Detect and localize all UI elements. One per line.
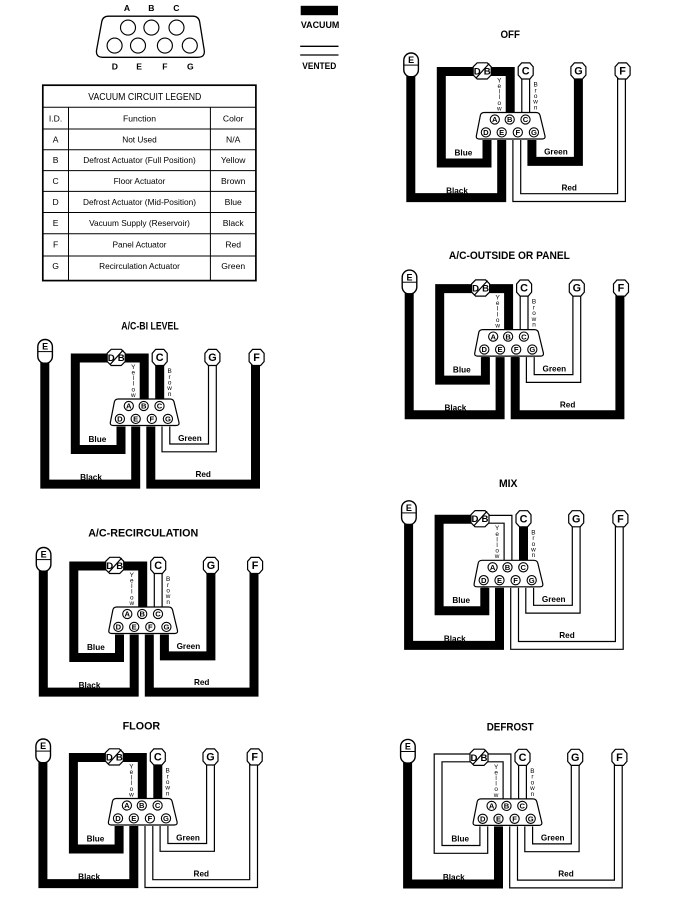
svg-text:Defrost Actuator (Full Positio: Defrost Actuator (Full Position) xyxy=(83,155,196,165)
svg-text:E: E xyxy=(53,218,59,228)
svg-text:C: C xyxy=(52,176,58,186)
svg-text:OFF: OFF xyxy=(500,29,520,41)
svg-text:DEFROST: DEFROST xyxy=(487,721,534,733)
svg-text:Yellow: Yellow xyxy=(221,155,246,165)
svg-text:A: A xyxy=(124,3,130,13)
svg-text:C: C xyxy=(173,3,179,13)
svg-text:Function: Function xyxy=(123,114,156,124)
svg-text:Floor Actuator: Floor Actuator xyxy=(114,176,166,186)
svg-text:Blue: Blue xyxy=(225,197,242,207)
svg-text:I.D.: I.D. xyxy=(49,114,62,124)
svg-text:G: G xyxy=(187,62,194,72)
svg-text:D: D xyxy=(52,197,58,207)
svg-text:Black: Black xyxy=(223,218,245,228)
svg-text:Color: Color xyxy=(223,114,244,124)
svg-text:A/C-BI LEVEL: A/C-BI LEVEL xyxy=(121,321,179,333)
svg-text:Green: Green xyxy=(221,261,245,271)
svg-text:Recirculation Actuator: Recirculation Actuator xyxy=(99,261,180,271)
svg-text:B: B xyxy=(148,3,154,13)
svg-text:VACUUM: VACUUM xyxy=(301,20,340,31)
svg-text:MIX: MIX xyxy=(499,478,518,490)
svg-text:N/A: N/A xyxy=(226,135,241,145)
svg-text:F: F xyxy=(162,62,167,72)
svg-text:Vacuum Supply (Reservoir): Vacuum Supply (Reservoir) xyxy=(89,218,190,228)
svg-text:Brown: Brown xyxy=(221,176,246,186)
svg-text:Red: Red xyxy=(225,240,241,250)
svg-text:VENTED: VENTED xyxy=(302,61,336,72)
svg-text:Defrost Actuator (Mid-Position: Defrost Actuator (Mid-Position) xyxy=(83,197,196,207)
svg-text:E: E xyxy=(136,62,142,72)
svg-text:A/C-RECIRCULATION: A/C-RECIRCULATION xyxy=(88,528,198,540)
svg-text:VACUUM CIRCUIT LEGEND: VACUUM CIRCUIT LEGEND xyxy=(88,92,201,103)
svg-text:B: B xyxy=(53,155,59,165)
svg-text:D: D xyxy=(112,62,118,72)
svg-text:A: A xyxy=(53,135,59,145)
svg-text:FLOOR: FLOOR xyxy=(123,720,161,732)
svg-text:G: G xyxy=(52,261,59,271)
svg-text:Panel Actuator: Panel Actuator xyxy=(113,240,167,250)
svg-text:Not Used: Not Used xyxy=(122,135,157,145)
svg-text:A/C-OUTSIDE OR PANEL: A/C-OUTSIDE OR PANEL xyxy=(449,250,570,262)
svg-text:F: F xyxy=(53,240,58,250)
